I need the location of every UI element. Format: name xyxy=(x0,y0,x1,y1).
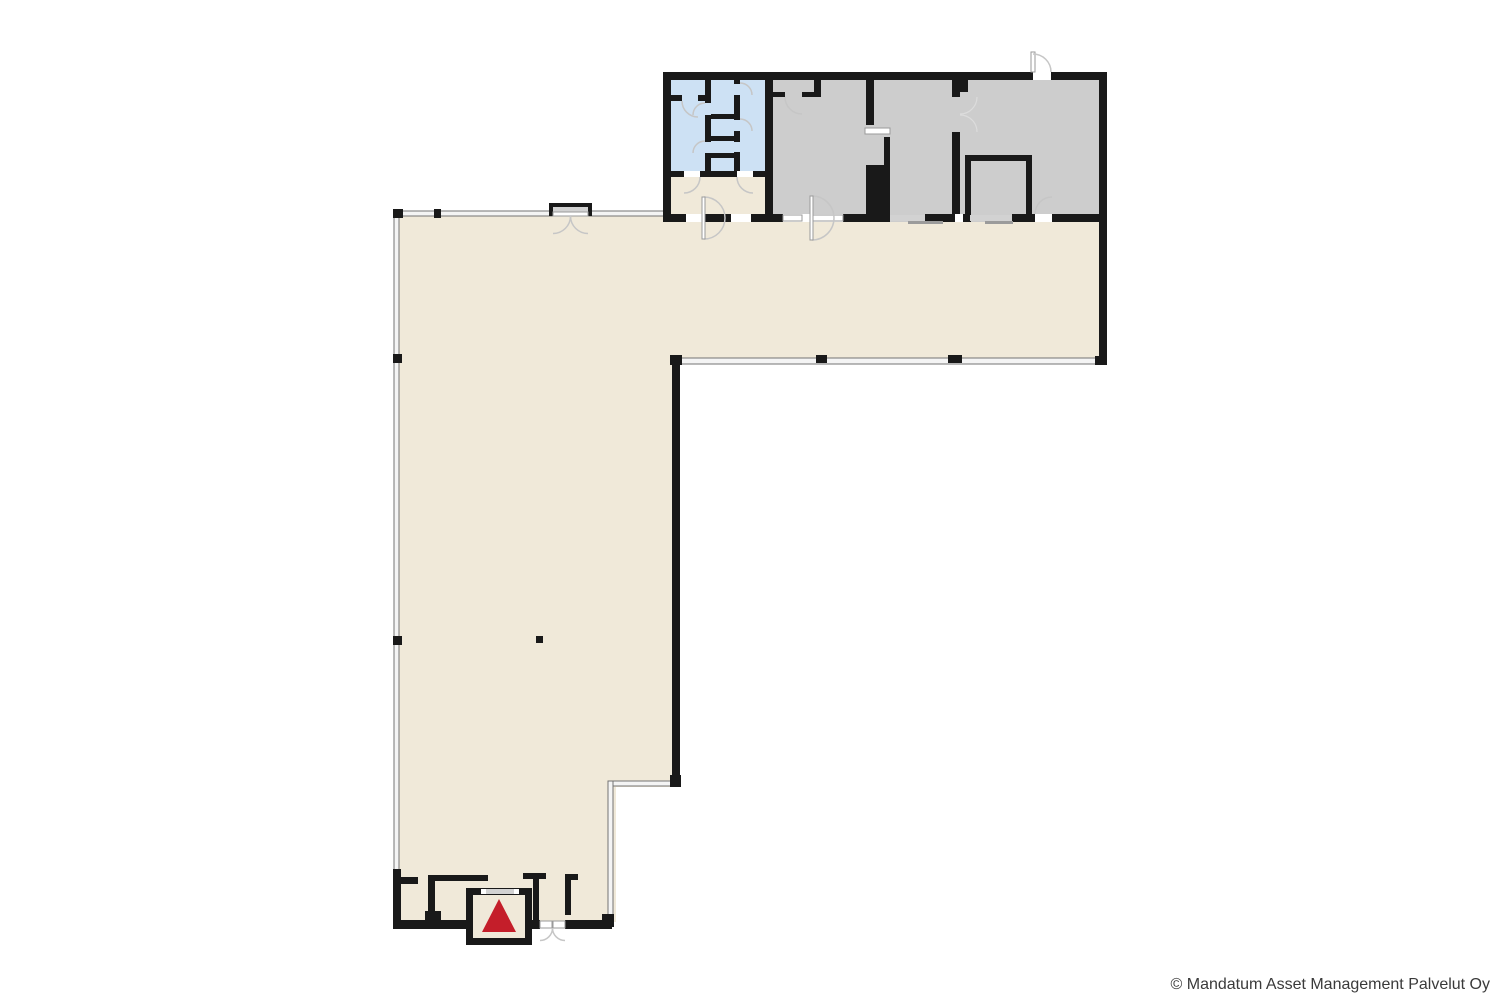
wall-segment xyxy=(925,214,955,222)
wall-segment xyxy=(428,881,435,912)
wall-segment xyxy=(816,355,827,363)
wall-segment xyxy=(705,153,711,171)
door-leaf xyxy=(812,215,843,221)
wall-segment xyxy=(884,137,890,165)
wall-segment xyxy=(769,92,785,97)
elevator xyxy=(466,888,532,945)
wall-segment xyxy=(952,132,960,222)
wall-segment xyxy=(866,165,890,222)
wall-segment xyxy=(698,95,705,101)
wall-segment xyxy=(711,114,734,119)
sliding-door-leaf xyxy=(908,221,943,224)
sliding-door xyxy=(970,215,1012,221)
copyright-notice: © Mandatum Asset Management Palvelut Oy xyxy=(1171,976,1491,994)
door-leaf xyxy=(1031,52,1035,72)
window-wall xyxy=(608,781,672,786)
wall-segment xyxy=(704,214,731,222)
door-leaf xyxy=(783,215,802,221)
wall-segment xyxy=(734,76,740,84)
wall-segment xyxy=(802,92,821,97)
wall-segment xyxy=(700,171,737,177)
door-leaf xyxy=(540,921,552,928)
wall-segment xyxy=(393,920,468,929)
wall-segment xyxy=(705,76,711,103)
main-hall-floor xyxy=(394,215,680,787)
wall-segment xyxy=(711,136,734,141)
door-leaf xyxy=(865,128,890,134)
wall-segment xyxy=(1095,356,1107,365)
wall-segment xyxy=(965,155,971,222)
door-opening xyxy=(684,171,700,177)
wall-segment xyxy=(734,152,740,171)
wall-segment xyxy=(814,76,821,92)
door-opening xyxy=(1033,72,1051,80)
wall-segment xyxy=(393,636,402,645)
wall-segment xyxy=(393,354,402,363)
wall-segment xyxy=(602,914,614,927)
wall-segment xyxy=(663,214,686,222)
wall-segment xyxy=(393,209,403,218)
structural-column xyxy=(536,636,543,643)
door-opening xyxy=(481,889,486,894)
door-arc-icon xyxy=(540,928,553,941)
window-wall xyxy=(677,358,1099,364)
wall-segment xyxy=(663,72,671,222)
door-leaf xyxy=(553,212,588,216)
wall-segment xyxy=(705,115,711,142)
floor-areas xyxy=(394,76,1099,922)
wall-segment xyxy=(948,355,962,363)
wall-segment xyxy=(670,775,681,787)
sliding-door xyxy=(890,215,925,221)
floor-plan-page: © Mandatum Asset Management Palvelut Oy xyxy=(0,0,1500,1000)
wall-segment xyxy=(393,877,418,884)
door-leaf xyxy=(810,196,813,240)
wall-segment xyxy=(866,72,874,125)
window-wall xyxy=(608,781,613,921)
wall-segment xyxy=(952,72,960,97)
vestibule-floor xyxy=(667,175,769,220)
wall-segment xyxy=(734,95,740,120)
door-opening xyxy=(1035,214,1052,222)
wall-segment xyxy=(667,95,682,101)
wall-segment xyxy=(734,131,740,142)
floor-plan xyxy=(0,0,1500,1000)
wall-segment xyxy=(843,214,868,222)
wall-segment xyxy=(670,355,682,365)
wall-segment xyxy=(711,153,734,158)
door-opening xyxy=(737,171,753,177)
rooms-floor xyxy=(769,76,1099,222)
door-opening xyxy=(514,889,519,894)
door-opening xyxy=(955,214,963,222)
door-leaf xyxy=(553,921,565,928)
wall-segment xyxy=(960,80,968,92)
wall-segment xyxy=(1052,214,1107,222)
elevator-door xyxy=(486,889,514,894)
door-opening xyxy=(686,214,704,222)
sliding-door-leaf xyxy=(985,221,1013,224)
door-leaf xyxy=(702,197,705,239)
window-wall xyxy=(394,211,399,871)
wall-segment xyxy=(663,171,684,177)
wall-segment xyxy=(1026,155,1032,222)
wall-segment xyxy=(428,875,488,881)
wet-room-floor xyxy=(667,76,769,175)
door-arc-icon xyxy=(1033,54,1051,72)
wall-segment xyxy=(965,155,1032,161)
wall-segment xyxy=(434,209,441,218)
wall-segment xyxy=(425,911,441,921)
wall-segment xyxy=(672,358,680,786)
wall-segment xyxy=(565,874,571,915)
wall-segment xyxy=(753,171,771,177)
wall-segment xyxy=(533,873,539,920)
door-opening xyxy=(731,214,751,222)
door-arc-icon xyxy=(553,928,566,941)
